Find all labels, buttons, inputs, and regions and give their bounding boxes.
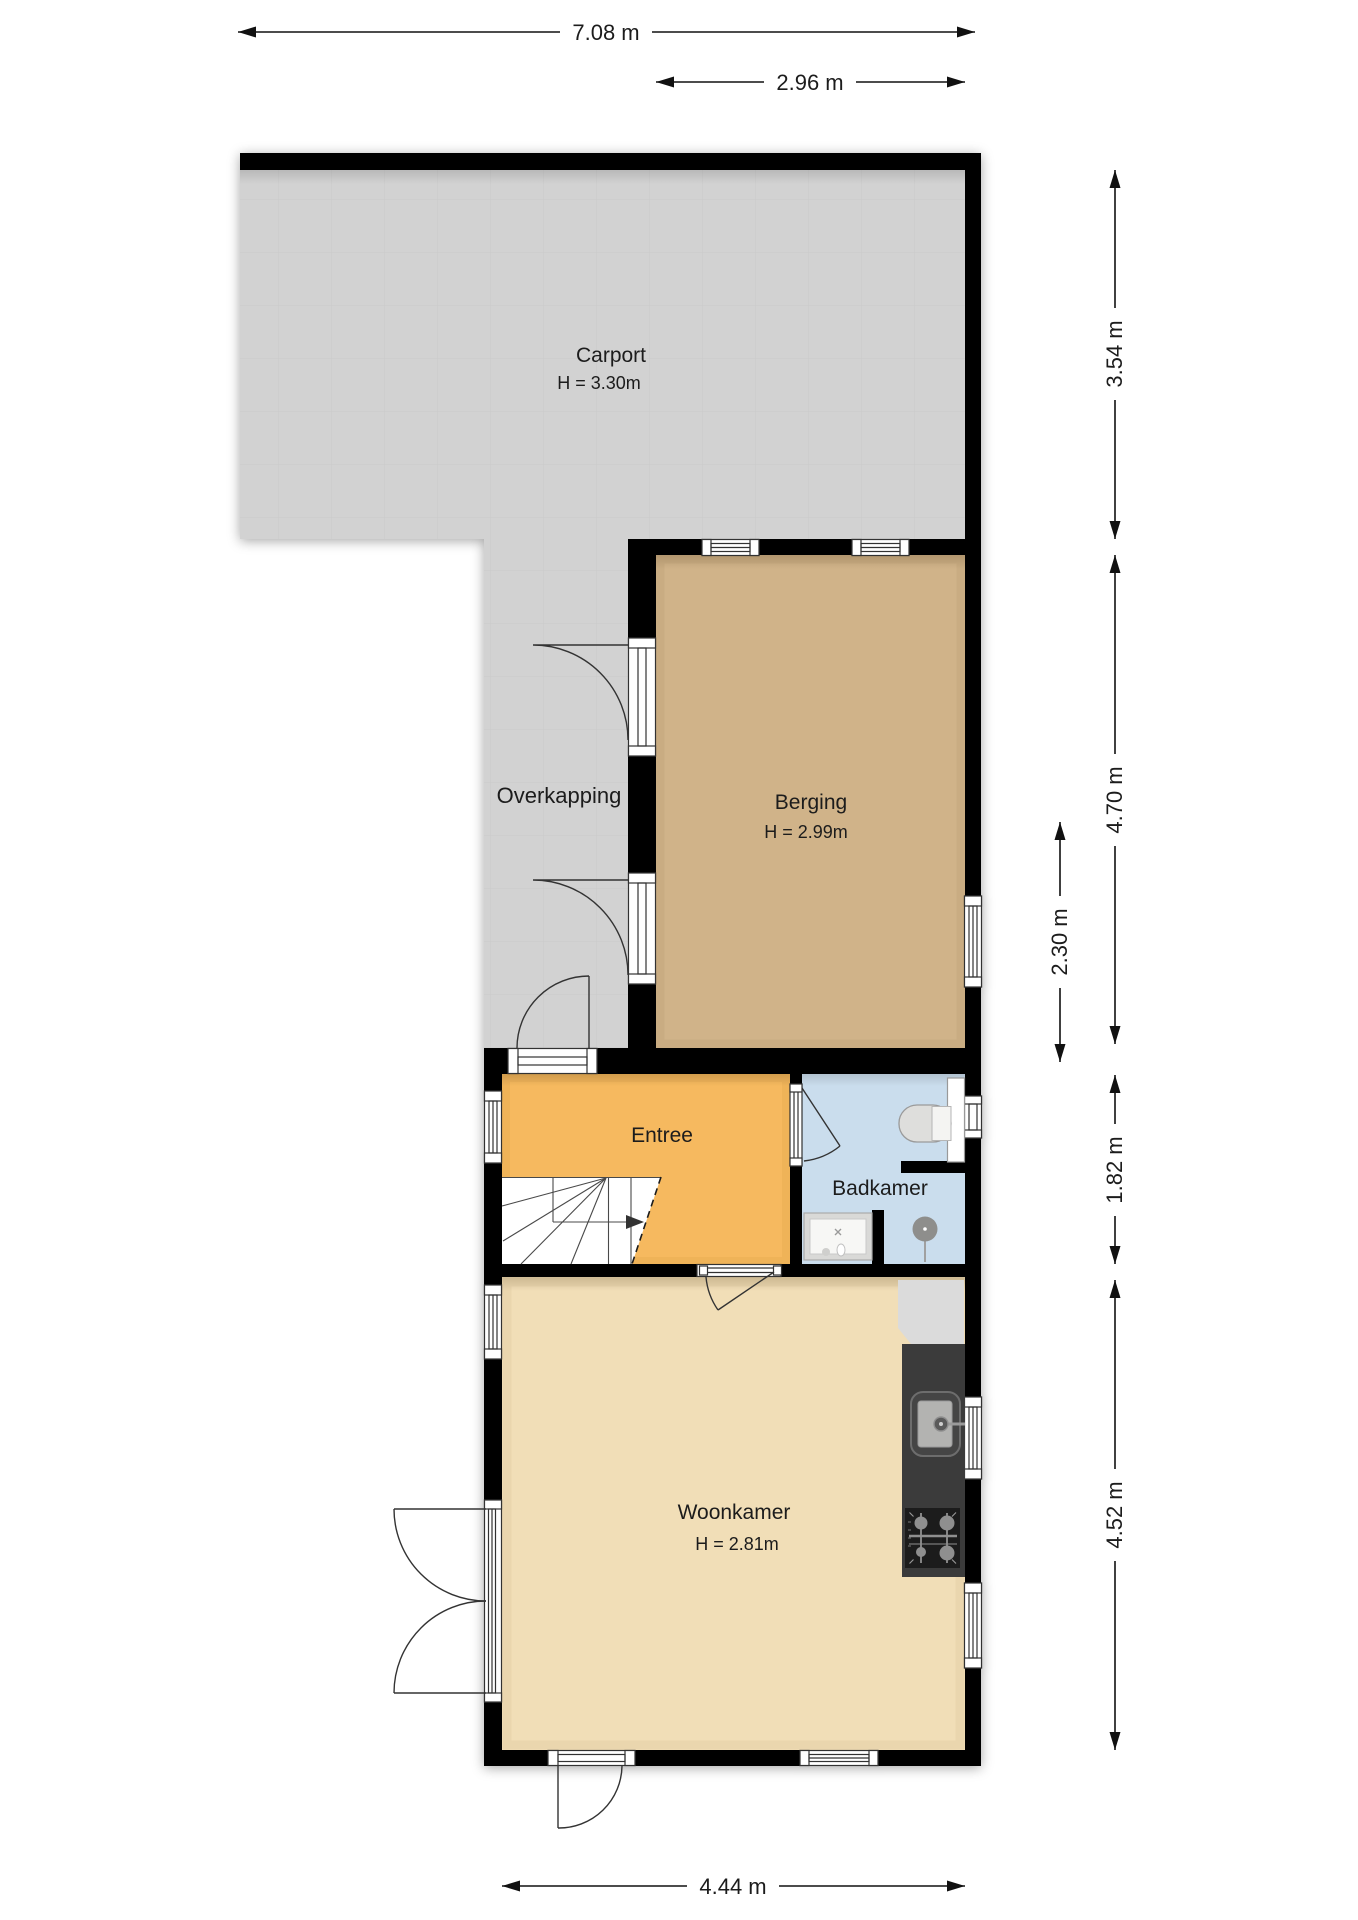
svg-text:Berging: Berging <box>775 791 847 814</box>
svg-text:1.82 m: 1.82 m <box>1102 1136 1127 1203</box>
svg-text:4.44 m: 4.44 m <box>699 1874 766 1899</box>
svg-text:Badkamer: Badkamer <box>832 1177 928 1200</box>
svg-text:3.54 m: 3.54 m <box>1102 320 1127 387</box>
svg-text:7.08 m: 7.08 m <box>572 20 639 45</box>
svg-text:Overkapping: Overkapping <box>497 783 622 808</box>
svg-text:Entree: Entree <box>631 1124 693 1147</box>
svg-text:Carport: Carport <box>576 344 646 367</box>
svg-text:4.52 m: 4.52 m <box>1102 1481 1127 1548</box>
svg-text:2.30 m: 2.30 m <box>1047 908 1072 975</box>
svg-text:4.70 m: 4.70 m <box>1102 766 1127 833</box>
svg-text:H = 2.81m: H = 2.81m <box>695 1534 779 1554</box>
svg-text:H = 2.99m: H = 2.99m <box>764 822 848 842</box>
svg-text:2.96 m: 2.96 m <box>776 70 843 95</box>
svg-text:H = 3.30m: H = 3.30m <box>557 373 641 393</box>
svg-text:Woonkamer: Woonkamer <box>678 1501 791 1524</box>
